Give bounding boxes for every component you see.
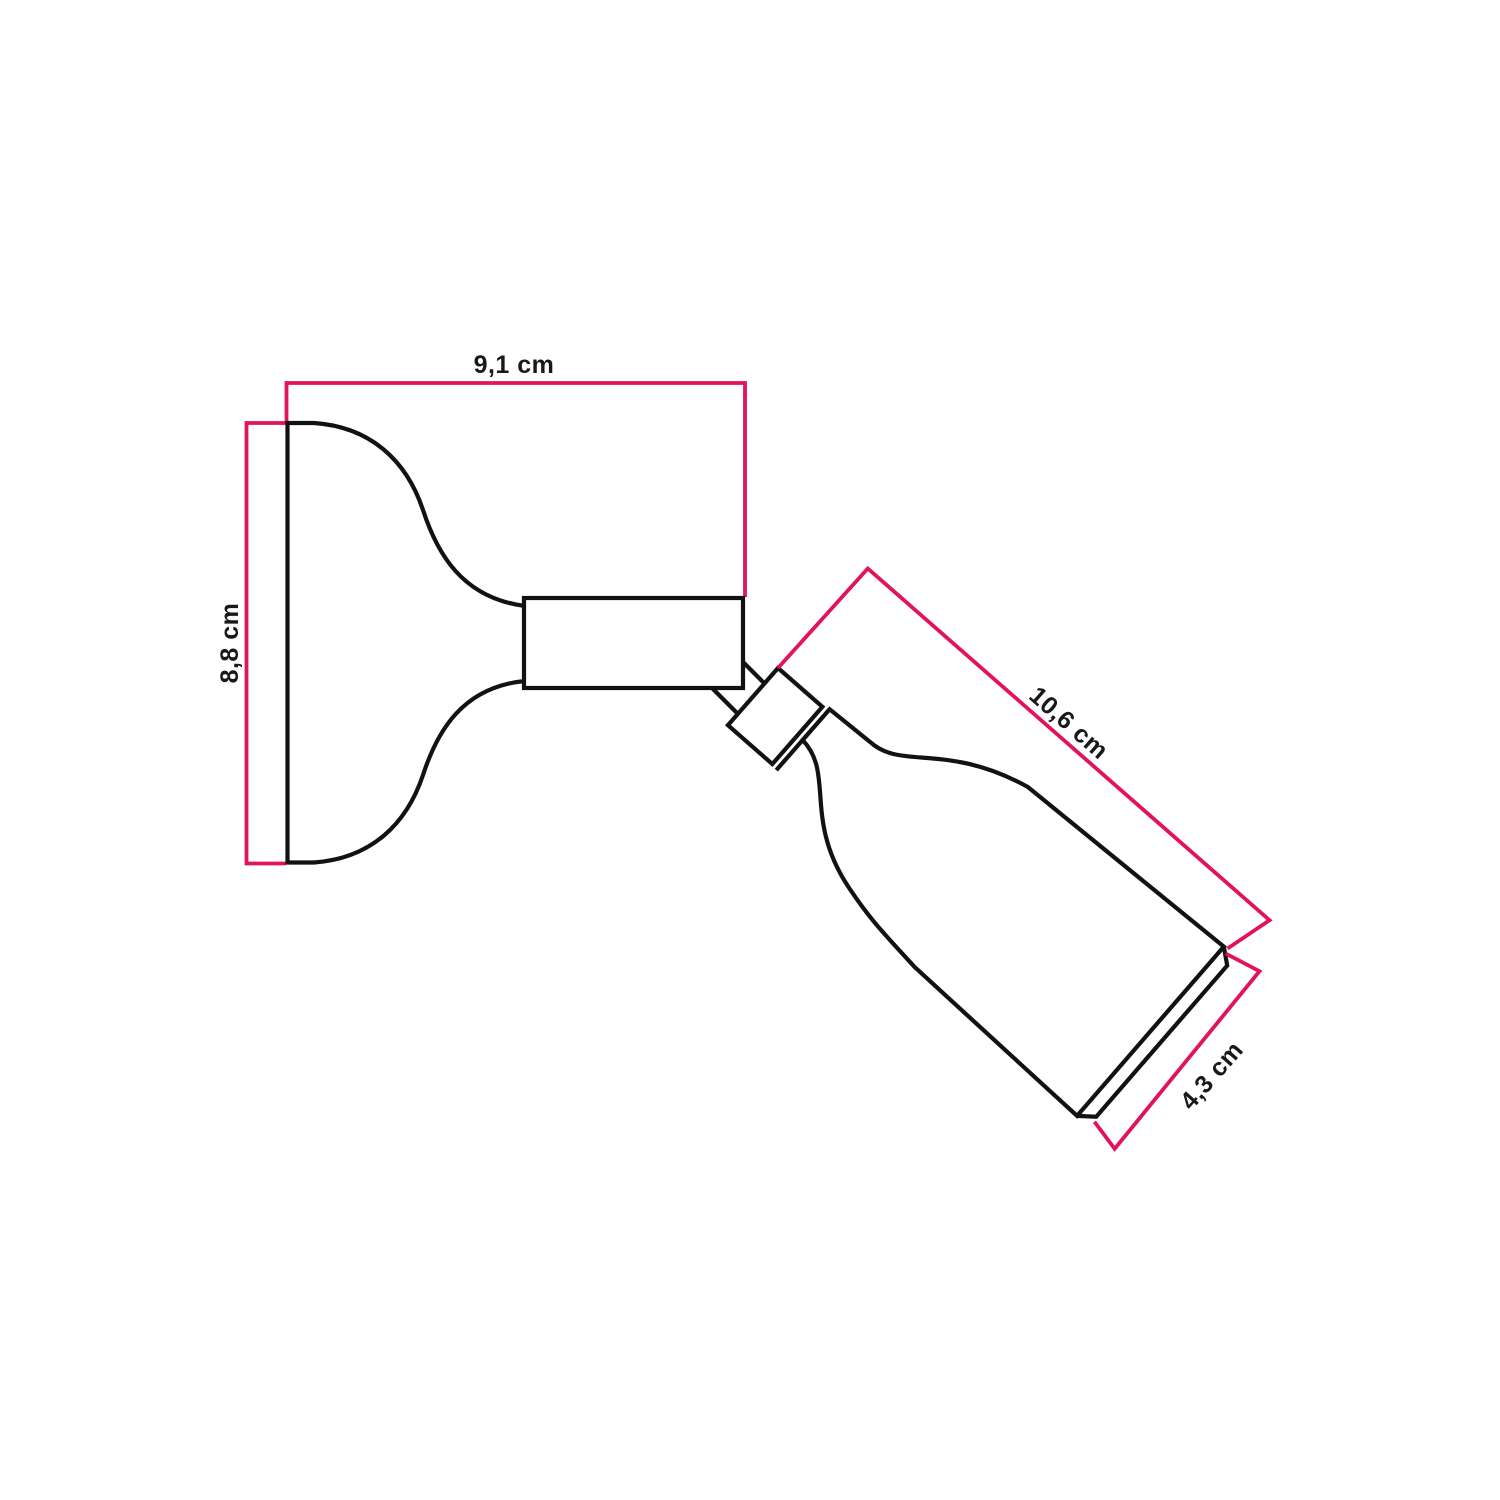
dim-height-line [247,423,287,864]
lamp-holder-group: 10,6 cm 4,3 cm [686,545,1344,1175]
dim-width-label: 9,1 cm [474,351,555,379]
diagram-canvas: 10,6 cm 4,3 cm 9,1 cm 8,8 cm [0,0,1500,1500]
fixture-drawing: 10,6 cm 4,3 cm [288,423,1345,1174]
dim-length-label: 10,6 cm [1024,681,1114,765]
dim-height-label: 8,8 cm [216,603,244,684]
socket-cylinder [524,598,743,688]
dim-diameter-label: 4,3 cm [1175,1036,1249,1115]
lamp-dimension-diagram: 10,6 cm 4,3 cm 9,1 cm 8,8 cm [0,0,1500,1500]
connector-edge-bottom [712,688,739,715]
wall-plate-outline [288,423,526,863]
